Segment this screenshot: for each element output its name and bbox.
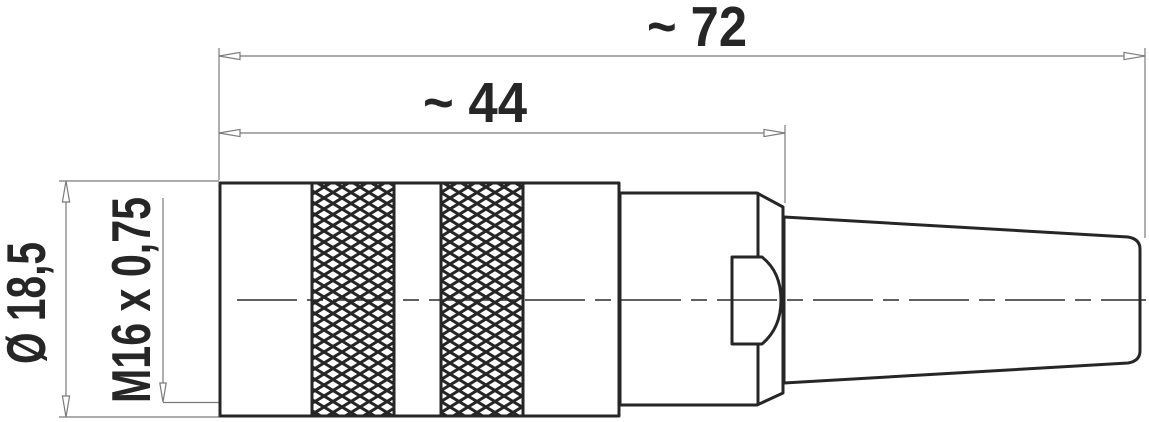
arrow-right-icon — [764, 129, 785, 136]
arrow-left-icon — [219, 52, 240, 59]
arrow-up-icon — [62, 181, 69, 202]
arrow-down-icon — [62, 396, 69, 417]
technical-drawing: ~ 72 ~ 44 Ø 18,5 M16 x 0,75 — [0, 0, 1149, 422]
drawing-canvas: ~ 72 ~ 44 Ø 18,5 M16 x 0,75 — [0, 0, 1149, 422]
arrow-right-icon — [1124, 52, 1145, 59]
dim-label-body-length: ~ 44 — [423, 71, 527, 135]
arrow-left-icon — [219, 129, 240, 136]
dim-label-overall-length: ~ 72 — [647, 0, 747, 59]
dim-label-diameter: Ø 18,5 — [0, 242, 57, 364]
dim-label-thread: M16 x 0,75 — [100, 197, 162, 403]
